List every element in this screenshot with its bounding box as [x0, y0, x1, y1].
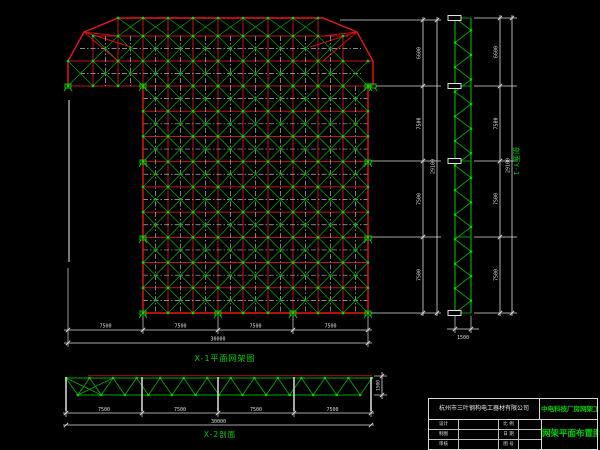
title-block-fields: 设计 比 例 制图 日 期 审核 图 号 — [429, 420, 541, 449]
field-label: 比 例 — [499, 420, 519, 429]
truss-x-caption: X-2剖面 — [155, 429, 285, 440]
truss-y-label: 剖面Y-1 — [511, 147, 521, 176]
svg-text:7500: 7500 — [494, 117, 500, 129]
svg-text:7500: 7500 — [326, 407, 338, 413]
field-label: 制图 — [429, 430, 459, 439]
svg-text:7500: 7500 — [174, 324, 186, 330]
title-block-row: 设计 比 例 — [429, 420, 541, 430]
company-name: 杭州市三叶钢构电工器材有限公司 — [429, 399, 540, 419]
title-block-row: 制图 日 期 — [429, 430, 541, 440]
cad-drawing: 7500750075007500300006600750075007500291… — [0, 0, 600, 450]
truss-x-elevation — [65, 376, 373, 411]
svg-text:30000: 30000 — [210, 337, 225, 343]
field-value — [459, 420, 499, 429]
truss-y-elevation — [448, 16, 472, 316]
project-name: 中电科技厂房网架工程 — [541, 399, 597, 419]
plan-caption: X-1平面网架图 — [155, 353, 295, 364]
svg-text:1500: 1500 — [376, 380, 382, 391]
svg-text:7500: 7500 — [494, 193, 500, 205]
drawing-title: 网架平面布置图 — [541, 420, 597, 449]
title-block: 杭州市三叶钢构电工器材有限公司 中电科技厂房网架工程 设计 比 例 制图 日 期… — [428, 398, 598, 450]
svg-text:7500: 7500 — [417, 193, 423, 205]
field-value — [519, 420, 541, 429]
svg-text:29100: 29100 — [431, 159, 437, 174]
field-label: 设计 — [429, 420, 459, 429]
svg-text:7500: 7500 — [417, 269, 423, 281]
field-value — [459, 430, 499, 439]
title-block-header-row: 杭州市三叶钢构电工器材有限公司 中电科技厂房网架工程 — [429, 399, 597, 420]
plan-supports — [64, 84, 377, 318]
field-value — [519, 430, 541, 439]
plan-chord-grid — [68, 18, 373, 313]
svg-text:7500: 7500 — [174, 407, 186, 413]
title-block-row: 审核 图 号 — [429, 440, 541, 450]
svg-text:7500: 7500 — [494, 269, 500, 281]
field-label: 图 号 — [499, 440, 519, 450]
plan-centerlines — [80, 36, 368, 313]
svg-text:30000: 30000 — [211, 419, 226, 425]
svg-text:6600: 6600 — [494, 46, 500, 58]
plan-outline — [68, 18, 373, 313]
svg-text:7500: 7500 — [98, 407, 110, 413]
svg-text:7500: 7500 — [99, 324, 111, 330]
svg-text:7500: 7500 — [249, 324, 261, 330]
truss-y-dimensions: 6600750075007500291001500 — [447, 15, 517, 341]
svg-text:7500: 7500 — [324, 324, 336, 330]
field-label: 审核 — [429, 440, 459, 450]
field-value — [519, 440, 541, 450]
svg-text:6600: 6600 — [417, 47, 423, 59]
drawing-canvas: 7500750075007500300006600750075007500291… — [0, 0, 600, 450]
svg-text:7500: 7500 — [417, 117, 423, 129]
field-label: 日 期 — [499, 430, 519, 439]
svg-text:7500: 7500 — [250, 407, 262, 413]
field-value — [459, 440, 499, 450]
svg-text:1500: 1500 — [457, 335, 469, 341]
